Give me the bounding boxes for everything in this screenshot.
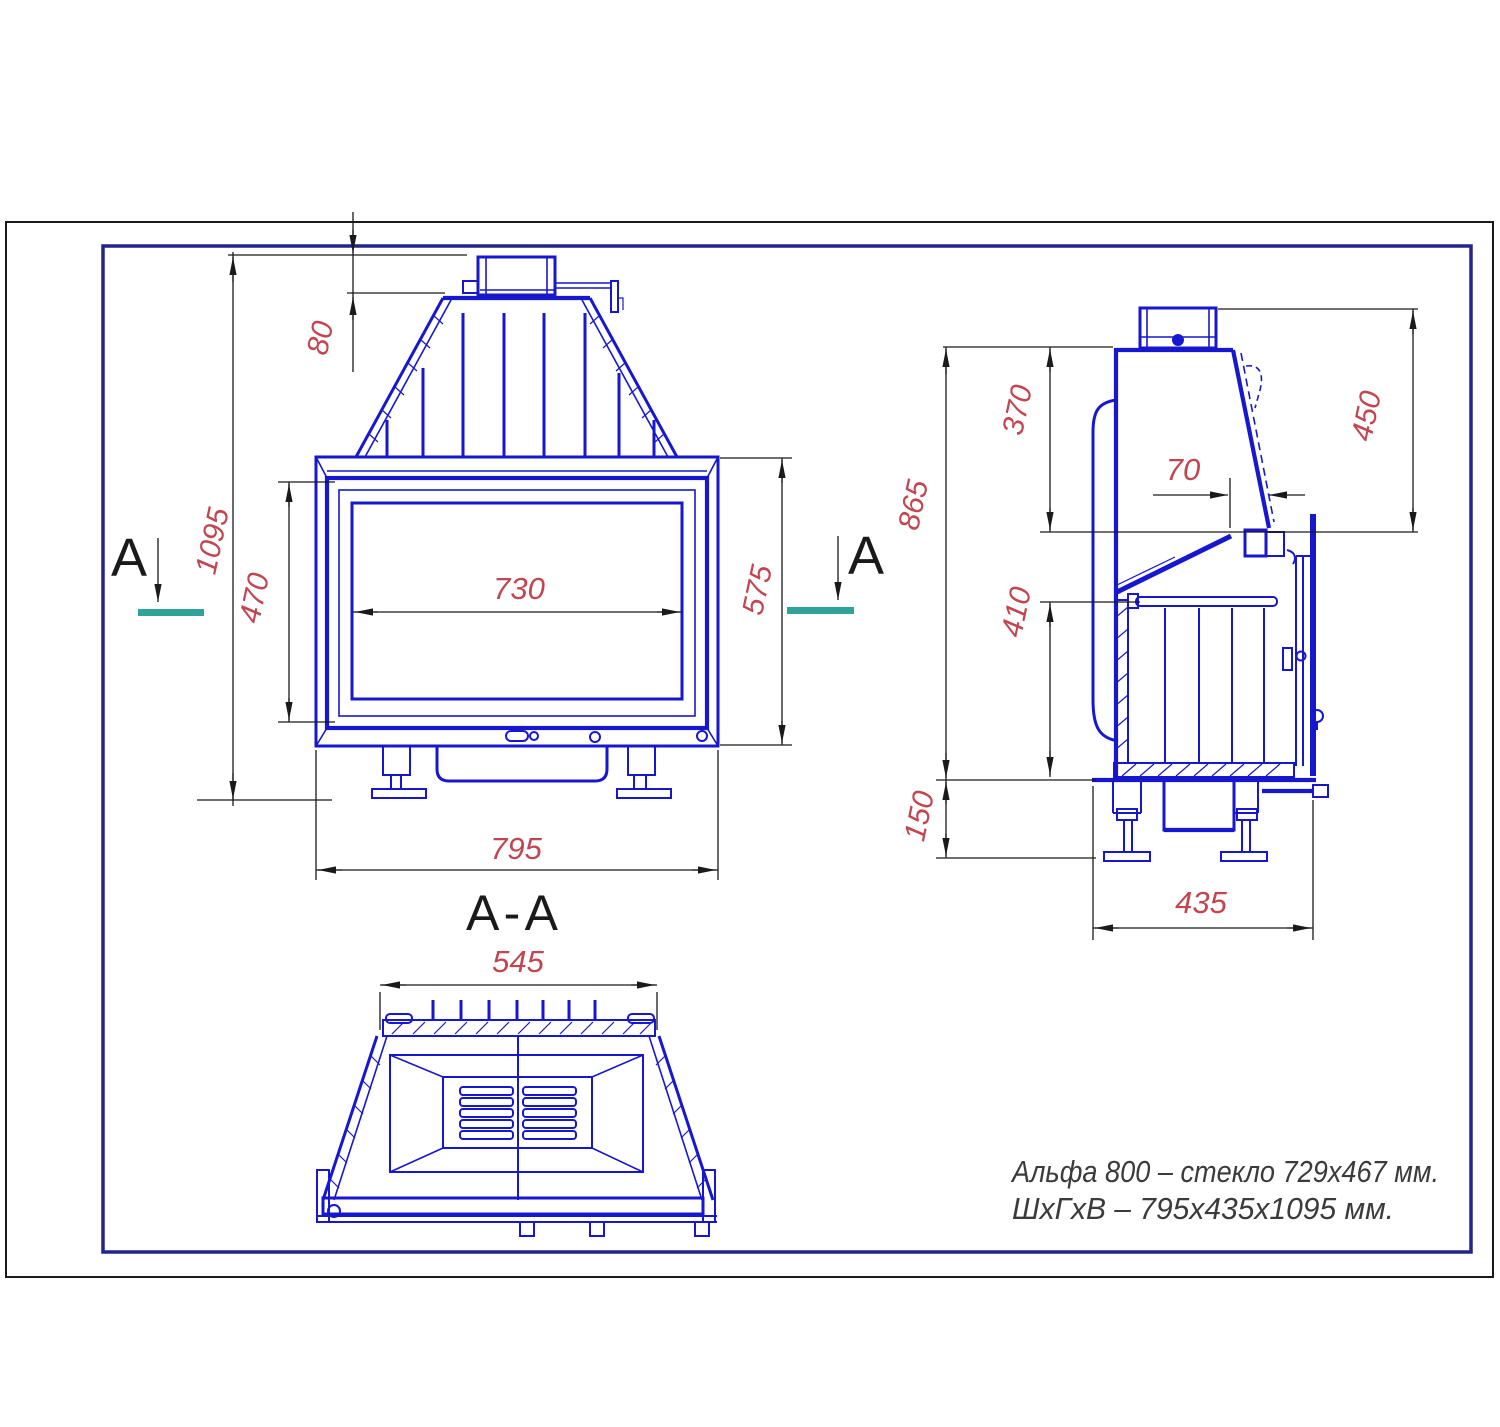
note-overall-size: ШхГхВ – 795x435x1095 мм. xyxy=(1012,1191,1394,1226)
note-glass-size: Альфа 800 – стекло 729x467 мм. xyxy=(1010,1154,1439,1189)
inner-frame-border xyxy=(103,246,1471,1252)
dim-front-overall-height: 1095 xyxy=(190,505,236,577)
side-latch xyxy=(1283,648,1292,670)
drawing-sheet: 80 1095 470 730 575 795 370 450 70 865 4… xyxy=(0,0,1500,1427)
dim-side-hood-height: 370 xyxy=(996,382,1039,438)
section-letter-right: A xyxy=(848,526,884,586)
labels: 80 1095 470 730 575 795 370 450 70 865 4… xyxy=(111,318,1439,1226)
side-view xyxy=(1092,308,1328,861)
dim-section-hood-top-width: 545 xyxy=(492,944,544,979)
front-collar-left-tab xyxy=(463,281,478,293)
side-ash-drawer xyxy=(1164,780,1234,830)
dim-front-facade-height: 575 xyxy=(736,562,779,618)
front-view xyxy=(316,257,718,798)
dim-side-firebox-height: 410 xyxy=(995,584,1038,640)
dim-side-overall-depth: 435 xyxy=(1175,885,1227,920)
section-view xyxy=(317,1000,717,1236)
dim-side-leg-height: 150 xyxy=(898,788,941,844)
section-plane-mark-right xyxy=(787,607,854,614)
front-right-leg xyxy=(628,746,655,775)
dim-side-collar-to-frame: 450 xyxy=(1345,388,1388,444)
outer-sheet-border xyxy=(6,222,1493,1277)
section-fins xyxy=(433,1000,595,1020)
section-base-band xyxy=(323,1198,703,1214)
dim-front-glass-width: 730 xyxy=(493,571,545,606)
dim-front-door-opening-height: 470 xyxy=(233,570,276,626)
section-plane-mark-left xyxy=(138,609,204,616)
dim-front-flue-collar-height: 80 xyxy=(301,318,340,358)
section-letter-left: A xyxy=(111,528,147,588)
section-view-title: A-A xyxy=(466,885,559,941)
front-collar-right-tab xyxy=(611,281,618,312)
front-left-leg xyxy=(383,746,410,775)
technical-drawing: 80 1095 470 730 575 795 370 450 70 865 4… xyxy=(0,0,1500,1427)
side-left-foot xyxy=(1104,852,1150,861)
dimension-lines xyxy=(158,212,1418,1030)
side-right-foot xyxy=(1221,852,1267,861)
dim-side-body-height: 865 xyxy=(892,477,935,533)
dim-side-glass-offset: 70 xyxy=(1166,452,1200,487)
front-hood-fins xyxy=(387,313,654,457)
side-tilted-front xyxy=(1233,350,1269,528)
front-ash-drawer xyxy=(437,746,607,781)
side-baffle-plate xyxy=(1136,597,1277,606)
dim-front-overall-width: 795 xyxy=(490,831,542,866)
side-deflector xyxy=(1117,536,1231,592)
front-door-handle xyxy=(506,731,528,741)
